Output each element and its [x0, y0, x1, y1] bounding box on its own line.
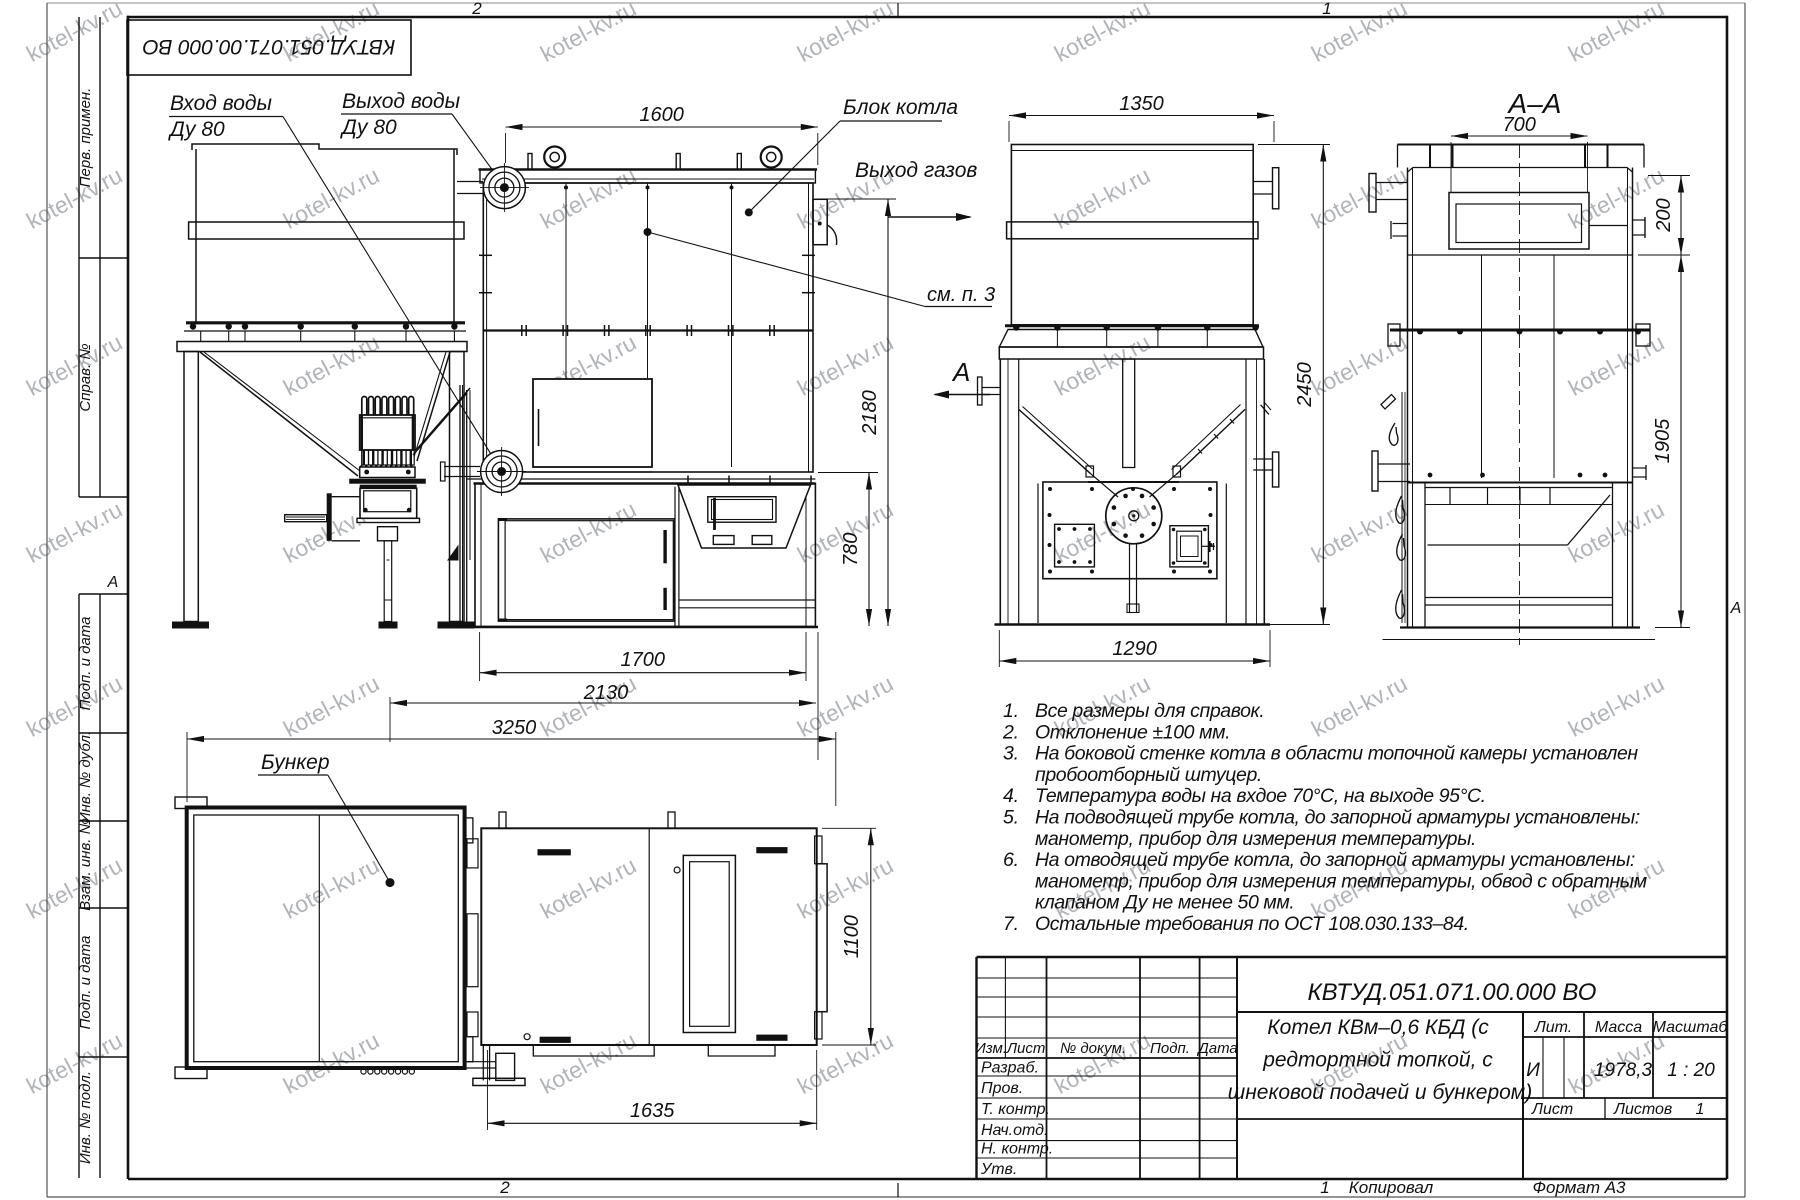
svg-text:А: А — [951, 357, 970, 387]
svg-text:3250: 3250 — [492, 717, 537, 739]
svg-text:Выход газов: Выход газов — [855, 159, 977, 182]
svg-text:шнековой подачей и бункером): шнековой подачей и бункером) — [1228, 1081, 1532, 1104]
svg-text:И: И — [1526, 1060, 1540, 1081]
svg-text:редтортной топкой, с: редтортной топкой, с — [1262, 1049, 1493, 1072]
svg-text:Остальные требования по ОСТ 10: Остальные требования по ОСТ 108.030.133–… — [1035, 913, 1469, 935]
svg-text:Все размеры для справок.: Все размеры для справок. — [1035, 700, 1264, 722]
svg-text:Отклонение ±100 мм.: Отклонение ±100 мм. — [1035, 721, 1230, 743]
svg-text:1700: 1700 — [621, 649, 666, 671]
svg-text:Пров.: Пров. — [981, 1080, 1023, 1097]
svg-text:А: А — [107, 574, 119, 591]
svg-text:манометр, прибор для измерения: манометр, прибор для измерения температу… — [1035, 828, 1476, 850]
svg-text:1: 1 — [1322, 0, 1331, 18]
svg-text:Лист: Лист — [1006, 1040, 1046, 1057]
svg-text:пробоотборный штуцер.: пробоотборный штуцер. — [1035, 764, 1262, 786]
svg-text:А: А — [1730, 600, 1742, 617]
svg-text:Масштаб: Масштаб — [1653, 1019, 1729, 1036]
svg-text:Подп.: Подп. — [1150, 1040, 1190, 1057]
svg-text:1290: 1290 — [1112, 638, 1157, 660]
svg-text:Копировал: Копировал — [1349, 1178, 1434, 1197]
svg-text:№ докум.: № докум. — [1060, 1040, 1126, 1057]
svg-text:2450: 2450 — [1294, 362, 1316, 408]
svg-text:3.: 3. — [1003, 743, 1019, 765]
svg-text:КВТУД.051.071.00.000 ВО: КВТУД.051.071.00.000 ВО — [1308, 979, 1597, 1006]
svg-text:Перв. примен.: Перв. примен. — [77, 88, 94, 188]
svg-text:1978,3: 1978,3 — [1594, 1060, 1653, 1081]
svg-text:Котел КВм–0,6 КБД (с: Котел КВм–0,6 КБД (с — [1267, 1016, 1489, 1039]
svg-text:Подп. и дата: Подп. и дата — [77, 617, 94, 711]
svg-text:Масса: Масса — [1595, 1019, 1642, 1036]
svg-text:700: 700 — [1503, 114, 1536, 136]
svg-text:1.: 1. — [1003, 700, 1019, 722]
svg-text:Н. контр.: Н. контр. — [981, 1141, 1053, 1158]
svg-text:Т. контр.: Т. контр. — [981, 1101, 1050, 1118]
svg-text:4.: 4. — [1003, 785, 1019, 807]
svg-text:7.: 7. — [1003, 913, 1019, 935]
svg-text:Подп. и дата: Подп. и дата — [77, 936, 94, 1030]
svg-text:Разраб.: Разраб. — [981, 1060, 1039, 1077]
svg-text:2.: 2. — [1002, 721, 1019, 743]
svg-text:Вход воды: Вход воды — [170, 92, 272, 115]
svg-text:Формат А3: Формат А3 — [1532, 1178, 1626, 1197]
svg-text:Справ. №: Справ. № — [77, 343, 94, 411]
svg-text:780: 780 — [840, 533, 862, 566]
svg-text:1 : 20: 1 : 20 — [1667, 1060, 1715, 1081]
svg-text:Нач.отд.: Нач.отд. — [981, 1122, 1048, 1139]
svg-text:Инв. № подл.: Инв. № подл. — [77, 1071, 94, 1164]
svg-text:На отводящей трубе котла, до з: На отводящей трубе котла, до запорной ар… — [1035, 849, 1635, 871]
svg-text:Листов: Листов — [1613, 1101, 1672, 1118]
svg-text:1905: 1905 — [1652, 418, 1674, 463]
svg-text:Изм.: Изм. — [975, 1040, 1007, 1057]
svg-text:На подводящей трубе котла, до: На подводящей трубе котла, до запорной а… — [1035, 807, 1640, 829]
svg-text:Выход воды: Выход воды — [342, 90, 461, 113]
svg-text:1350: 1350 — [1119, 93, 1164, 115]
svg-text:Взам. инв. №: Взам. инв. № — [77, 818, 94, 911]
svg-text:Дата: Дата — [1196, 1040, 1238, 1057]
svg-text:2180: 2180 — [859, 390, 881, 436]
svg-text:2: 2 — [471, 0, 482, 18]
svg-text:Температура воды на вхдое 70°С: Температура воды на вхдое 70°С, на выход… — [1035, 785, 1486, 807]
svg-text:Лит.: Лит. — [1534, 1019, 1572, 1036]
svg-text:Блок котла: Блок котла — [843, 96, 958, 119]
svg-text:1600: 1600 — [639, 104, 684, 126]
svg-text:1: 1 — [1320, 1178, 1329, 1197]
svg-text:1635: 1635 — [630, 1100, 675, 1122]
svg-text:см. п. 3: см. п. 3 — [927, 284, 995, 306]
svg-text:5.: 5. — [1003, 807, 1019, 829]
svg-text:6.: 6. — [1003, 849, 1019, 871]
svg-text:Бункер: Бункер — [261, 751, 330, 774]
svg-text:Лист: Лист — [1531, 1101, 1573, 1118]
svg-text:1100: 1100 — [841, 915, 863, 958]
svg-text:Ду 80: Ду 80 — [168, 118, 225, 141]
svg-text:КВТУД.051.071.00.000 ВО: КВТУД.051.071.00.000 ВО — [143, 35, 396, 58]
svg-text:1: 1 — [1696, 1101, 1705, 1118]
svg-text:200: 200 — [1653, 198, 1675, 232]
svg-text:2130: 2130 — [583, 682, 629, 704]
svg-text:клапаном Ду не менее 50 мм.: клапаном Ду не менее 50 мм. — [1035, 892, 1294, 914]
svg-text:манометр, прибор для измерения: манометр, прибор для измерения температу… — [1035, 870, 1647, 892]
svg-text:Утв.: Утв. — [980, 1161, 1017, 1178]
svg-text:На боковой стенке котла в обла: На боковой стенке котла в области топочн… — [1035, 743, 1638, 765]
svg-text:Инв. № дубл.: Инв. № дубл. — [77, 731, 94, 823]
svg-text:Ду 80: Ду 80 — [340, 116, 397, 139]
svg-text:2: 2 — [499, 1178, 510, 1197]
